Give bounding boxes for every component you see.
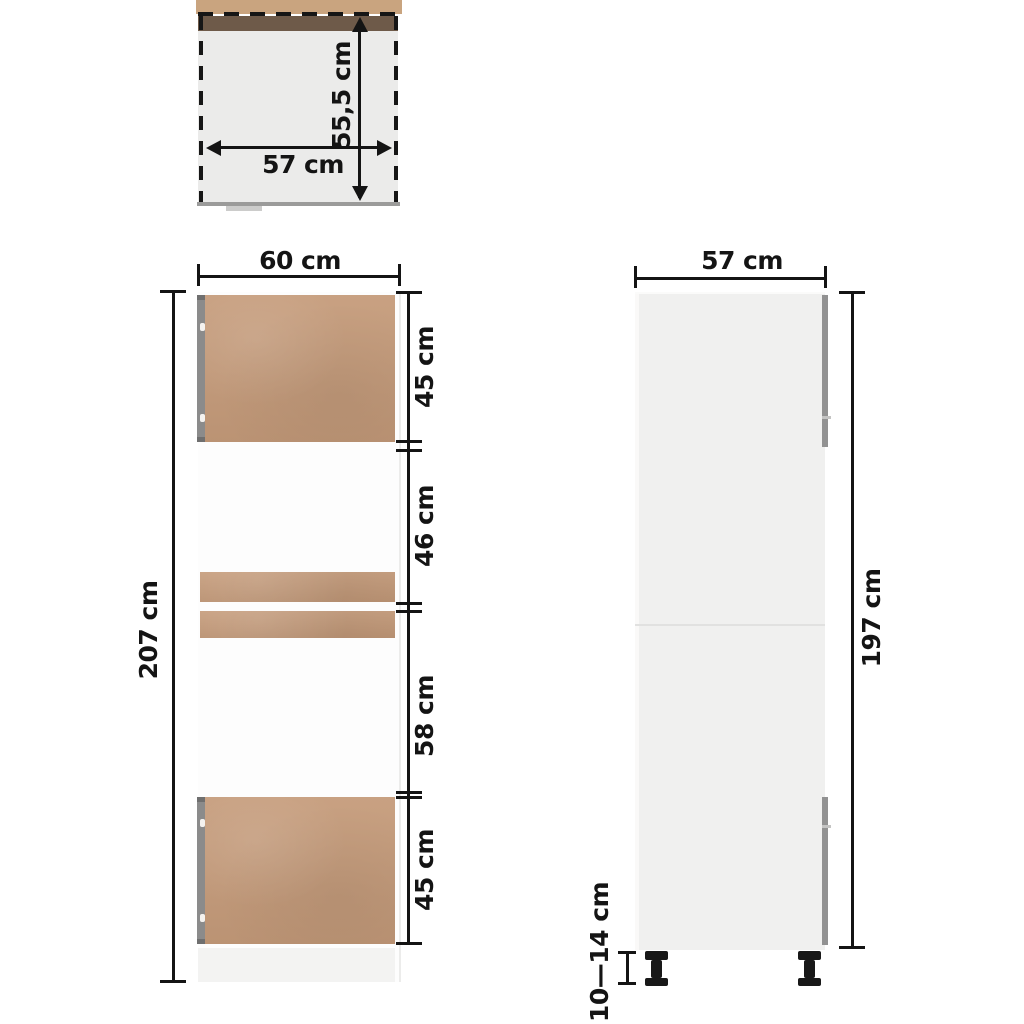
side-body-seam bbox=[635, 624, 825, 626]
top-view-dashed-top bbox=[198, 12, 398, 16]
side-height-tick-bottom bbox=[839, 946, 865, 949]
dimension-diagram: 55,5 cm 57 cm 60 cm 207 cm bbox=[0, 0, 1024, 1024]
front-height-tick-bottom bbox=[160, 980, 186, 983]
front-door-bottom bbox=[197, 797, 395, 944]
top-view: 55,5 cm 57 cm bbox=[0, 0, 512, 230]
front-view: 60 cm 207 cm bbox=[0, 240, 512, 1024]
front-plinth bbox=[198, 948, 395, 982]
leg-height-label: 10—14 cm bbox=[585, 872, 615, 1024]
top-view-handle-tab bbox=[226, 206, 262, 211]
top-view-dashed-right bbox=[394, 16, 398, 204]
top-width-label: 57 cm bbox=[223, 150, 383, 180]
top-width-arrow-head-left bbox=[206, 140, 221, 156]
section-label-46: 46 cm bbox=[410, 446, 440, 606]
side-hinge-mark bbox=[822, 825, 831, 828]
side-door-edge-top bbox=[822, 295, 828, 447]
front-height-dim-line bbox=[172, 291, 175, 982]
side-height-tick-top bbox=[839, 291, 865, 294]
hinge-dot bbox=[200, 819, 205, 827]
side-width-label: 57 cm bbox=[662, 246, 822, 276]
section-label-45-bottom: 45 cm bbox=[410, 790, 440, 950]
depth-arrow-head-down bbox=[352, 186, 368, 201]
front-height-tick-top bbox=[160, 290, 186, 293]
front-shelf-strip-lower bbox=[200, 611, 395, 638]
side-width-tick-right bbox=[824, 266, 827, 288]
side-width-tick-left bbox=[634, 266, 637, 288]
top-view-dashed-left bbox=[199, 16, 203, 204]
leg-height-dim-line bbox=[626, 952, 629, 983]
section-tick bbox=[396, 610, 422, 613]
front-width-tick-left bbox=[197, 264, 200, 286]
section-label-58: 58 cm bbox=[410, 636, 440, 796]
front-width-tick-right bbox=[398, 264, 401, 286]
side-height-dim-line bbox=[851, 292, 854, 948]
front-door-top bbox=[197, 295, 395, 442]
section-label-45-top: 45 cm bbox=[410, 287, 440, 447]
side-height-label: 197 cm bbox=[857, 538, 887, 698]
front-width-dim-line bbox=[198, 275, 400, 278]
side-door-edge-bottom bbox=[822, 797, 828, 945]
front-height-label: 207 cm bbox=[134, 550, 164, 710]
hinge-dot bbox=[200, 414, 205, 422]
side-body-front-edge bbox=[635, 294, 639, 950]
front-width-label: 60 cm bbox=[220, 246, 380, 276]
front-shelf-strip-upper bbox=[200, 572, 395, 602]
side-cabinet-body bbox=[635, 292, 825, 950]
side-hinge-mark bbox=[822, 416, 831, 419]
top-view-rear-edge bbox=[198, 16, 398, 31]
hinge-dot bbox=[200, 914, 205, 922]
side-view: 57 cm 197 cm bbox=[512, 240, 1024, 1024]
leg-height-tick-top bbox=[618, 951, 636, 954]
hinge-dot bbox=[200, 323, 205, 331]
top-width-arrow bbox=[211, 146, 387, 149]
side-width-dim-line bbox=[635, 277, 825, 280]
leg-height-tick-bottom bbox=[618, 982, 636, 985]
